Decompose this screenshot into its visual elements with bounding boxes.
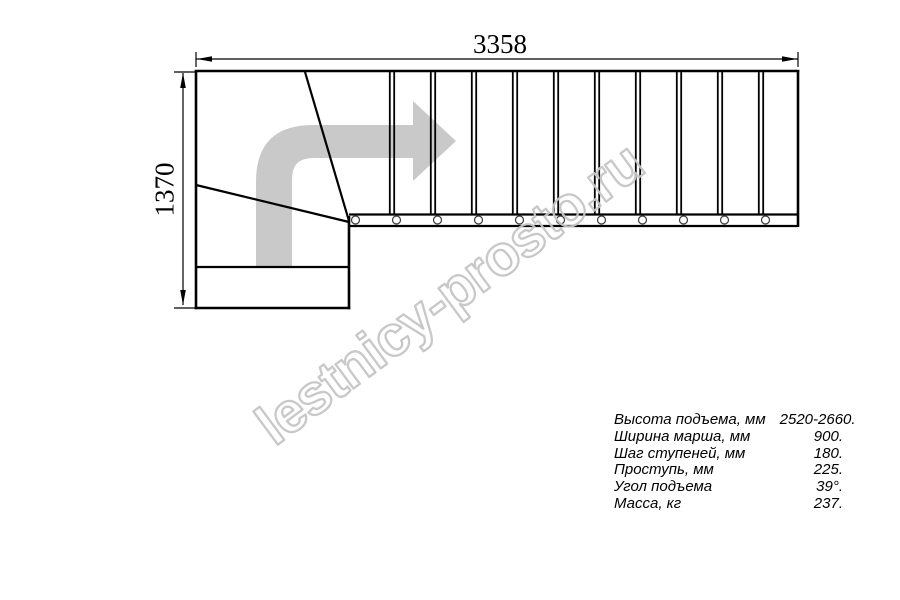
staircase-plan-page: lestnicy-prosto.ru 3358 1370 Высота подъ… <box>0 0 900 600</box>
stringer-bolt-circle <box>639 216 647 224</box>
stringer-bolt-circle <box>434 216 442 224</box>
spec-value: 237. <box>814 496 843 513</box>
spec-value: 39°. <box>816 479 843 496</box>
stringer-bolt-circle <box>352 216 360 224</box>
spec-row: Угол подъема 39°. <box>614 479 843 496</box>
spec-row: Масса, кг 237. <box>614 496 843 513</box>
spec-row: Проступь, мм 225. <box>614 462 843 479</box>
arrowhead-left <box>197 56 212 62</box>
spec-row: Шаг ступеней, мм 180. <box>614 446 843 463</box>
spec-value: 225. <box>814 462 843 479</box>
arrowhead-right <box>782 56 797 62</box>
direction-arrow <box>256 101 456 267</box>
watermark-text: lestnicy-prosto.ru <box>244 130 655 457</box>
left-dimension-label: 1370 <box>150 135 181 245</box>
spec-label: Высота подъема, мм <box>614 412 766 429</box>
spec-row: Высота подъема, мм 2520-2660. <box>614 412 843 429</box>
spec-label: Угол подъема <box>614 479 712 496</box>
spec-label: Масса, кг <box>614 496 681 513</box>
spec-table: Высота подъема, мм 2520-2660. Ширина мар… <box>614 412 843 513</box>
spec-value: 2520-2660. <box>780 412 856 429</box>
stringer-bolt-circle <box>721 216 729 224</box>
spec-value: 180. <box>814 446 843 463</box>
spec-label: Шаг ступеней, мм <box>614 446 745 463</box>
spec-row: Ширина марша, мм 900. <box>614 429 843 446</box>
stringer-bolt-circle <box>393 216 401 224</box>
arrowhead-up <box>180 73 186 88</box>
stringer-bolt-circle <box>475 216 483 224</box>
top-dimension-label: 3358 <box>430 29 570 60</box>
spec-label: Ширина марша, мм <box>614 429 750 446</box>
spec-label: Проступь, мм <box>614 462 714 479</box>
spec-value: 900. <box>814 429 843 446</box>
stringer-bolt-circle <box>680 216 688 224</box>
stringer-bolt-circle <box>762 216 770 224</box>
arrowhead-down <box>180 290 186 305</box>
